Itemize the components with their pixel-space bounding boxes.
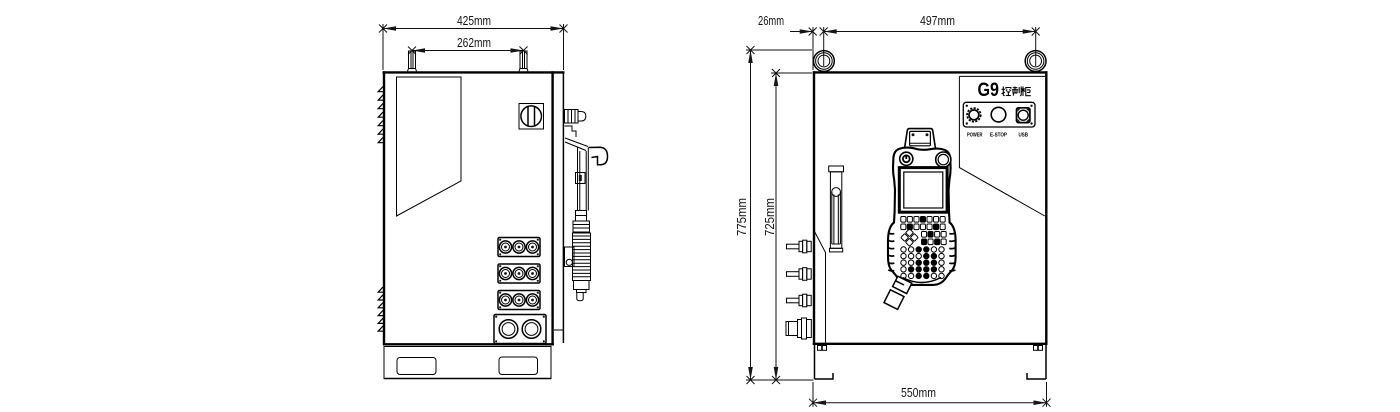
svg-text:262mm: 262mm bbox=[457, 35, 491, 50]
svg-text:E-STOP: E-STOP bbox=[990, 133, 1007, 139]
svg-text:497mm: 497mm bbox=[920, 13, 955, 28]
svg-text:775mm: 775mm bbox=[734, 198, 749, 236]
svg-text:POWER: POWER bbox=[967, 133, 983, 139]
svg-text:550mm: 550mm bbox=[901, 385, 936, 400]
svg-text:26mm: 26mm bbox=[758, 13, 784, 28]
svg-text:USB: USB bbox=[1019, 133, 1029, 139]
svg-text:G9: G9 bbox=[978, 80, 1000, 101]
svg-text:425mm: 425mm bbox=[457, 13, 491, 28]
svg-text:725mm: 725mm bbox=[762, 198, 777, 236]
